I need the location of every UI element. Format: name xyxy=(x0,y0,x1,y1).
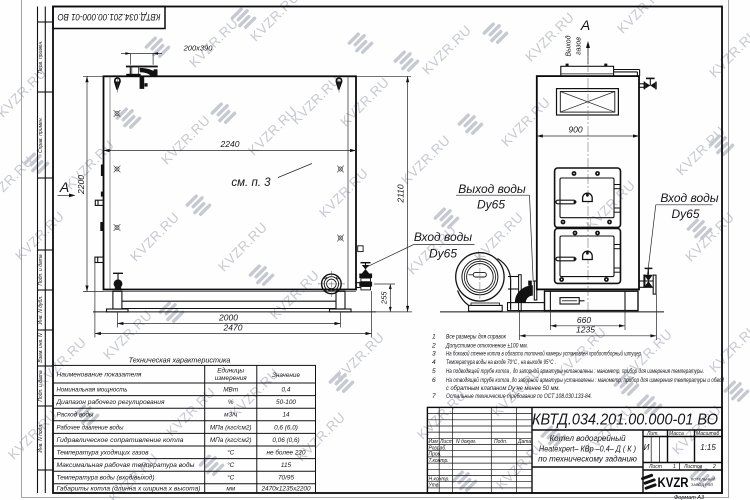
svg-text:14: 14 xyxy=(282,412,290,419)
svg-text:Формат А3: Формат А3 xyxy=(674,495,705,500)
svg-text:7: 7 xyxy=(432,393,436,400)
svg-text:м3/ч: м3/ч xyxy=(224,412,238,419)
svg-text:Все размеры для справок: Все размеры для справок xyxy=(446,333,507,341)
svg-text:Дата: Дата xyxy=(517,439,531,445)
svg-text:На подводящей трубе котла ,: На подводящей трубе котла , до запорной … xyxy=(446,367,704,375)
svg-text:Пров.: Пров. xyxy=(429,452,442,458)
svg-text:2110: 2110 xyxy=(396,184,406,204)
svg-text:Изм: Изм xyxy=(429,439,439,445)
svg-text:Справ. примен.: Справ. примен. xyxy=(38,117,44,153)
svg-text:70/95: 70/95 xyxy=(278,475,294,482)
svg-text:Вход воды: Вход воды xyxy=(414,230,472,244)
svg-text:660: 660 xyxy=(577,315,591,325)
svg-text:мм: мм xyxy=(226,486,235,493)
svg-text:Техническая характеристика: Техническая характеристика xyxy=(129,356,231,365)
svg-text:Единицы: Единицы xyxy=(217,367,244,375)
svg-text:1235: 1235 xyxy=(576,325,595,335)
svg-text:3: 3 xyxy=(432,350,436,357)
svg-text:не более 220: не более 220 xyxy=(266,449,305,457)
svg-text:6: 6 xyxy=(432,377,436,384)
svg-text:Инв. N дубл.: Инв. N дубл. xyxy=(38,296,44,325)
svg-text:Значение: Значение xyxy=(272,372,300,379)
svg-text:Расход воды: Расход воды xyxy=(57,411,94,419)
svg-text:Т.контр.: Т.контр. xyxy=(429,458,449,464)
svg-text:4: 4 xyxy=(432,359,436,366)
svg-text:КОТЕЛЬНЫЙ: КОТЕЛЬНЫЙ xyxy=(691,477,716,482)
svg-text:Лист: Лист xyxy=(648,464,662,470)
svg-text:газов: газов xyxy=(576,37,583,55)
svg-text:2000: 2000 xyxy=(218,313,238,323)
svg-text:На отводящей трубе котла ,до з: На отводящей трубе котла ,до запорной ар… xyxy=(446,376,724,384)
svg-text:Подп. и дата: Подп. и дата xyxy=(38,254,44,286)
svg-text:0,6 (6,0): 0,6 (6,0) xyxy=(274,424,298,431)
svg-text:50-100: 50-100 xyxy=(276,399,296,406)
svg-text:с обратным клапаном Dу не мен: с обратным клапаном Dу не менее 50 мм. xyxy=(446,384,560,392)
svg-text:255: 255 xyxy=(380,291,389,305)
svg-text:Взам. инв. N: Взам. инв. N xyxy=(38,333,44,363)
svg-text:Масса: Масса xyxy=(669,431,684,437)
svg-text:Диапазон рабочего регулировани: Диапазон рабочего регулирования xyxy=(55,398,165,406)
svg-text:А: А xyxy=(580,17,590,33)
svg-text:по техническому заданию: по техническому заданию xyxy=(538,455,637,464)
svg-text:МВт: МВт xyxy=(223,387,239,394)
svg-text:0,4: 0,4 xyxy=(282,387,291,394)
svg-text:КВТД.034.201.00.000-01 ВО: КВТД.034.201.00.000-01 ВО xyxy=(532,412,718,429)
svg-text:N докум.: N докум. xyxy=(456,439,476,445)
svg-text:КВТД.034.201.00.000-01 ВО: КВТД.034.201.00.000-01 ВО xyxy=(57,11,161,22)
svg-text:Максимальная рабочая температу: Максимальная рабочая температура воды xyxy=(57,461,195,469)
svg-text:Допустимое отклонение ±100 мм: Допустимое отклонение ±100 мм. xyxy=(445,342,528,349)
svg-text:МПа (кгс/см2): МПа (кгс/см2) xyxy=(210,424,252,431)
svg-text:1: 1 xyxy=(673,464,676,470)
svg-text:Подп. и дата: Подп. и дата xyxy=(38,370,44,402)
svg-text:Лит.: Лит. xyxy=(646,431,659,437)
svg-text:А: А xyxy=(59,179,69,195)
svg-text:Листов: Листов xyxy=(683,464,703,470)
svg-text:115: 115 xyxy=(281,462,292,469)
svg-text:Наименование показателя: Наименование показателя xyxy=(57,372,143,379)
svg-text:2470: 2470 xyxy=(223,323,243,333)
svg-text:Температура воды на входе 70°: Температура воды на входе 70°С , на выхо… xyxy=(446,358,556,366)
svg-text:Температура воды (вход/выход): Температура воды (вход/выход) xyxy=(57,474,155,482)
svg-text:2200: 2200 xyxy=(76,175,86,195)
svg-text:Dy65: Dy65 xyxy=(429,247,457,261)
svg-text:2240: 2240 xyxy=(220,139,240,149)
svg-text:°С: °С xyxy=(227,474,235,482)
svg-text:1:15: 1:15 xyxy=(700,443,716,452)
svg-text:2470х1235х2200: 2470х1235х2200 xyxy=(260,486,310,493)
svg-text:Габариты котла (длинна х ширин: Габариты котла (длинна х ширина х высота… xyxy=(57,485,201,493)
svg-text:%: % xyxy=(228,399,234,406)
svg-text:Dy65: Dy65 xyxy=(671,207,699,221)
svg-text:200х390: 200х390 xyxy=(183,44,214,53)
svg-text:Гидравлическое сопративление к: Гидравлическое сопративление котла xyxy=(57,436,184,444)
svg-text:Температура уходящих газов: Температура уходящих газов xyxy=(57,449,150,457)
svg-text:На боковой стенке котла в обла: На боковой стенке котла в области топочн… xyxy=(446,349,641,357)
svg-text:Heatexpert– КВр –0,4– Д ( К ): Heatexpert– КВр –0,4– Д ( К ) xyxy=(539,445,636,454)
svg-text:измерения: измерения xyxy=(215,375,248,382)
svg-text:см. п. 3: см. п. 3 xyxy=(231,177,271,189)
svg-text:Лист: Лист xyxy=(439,439,453,445)
svg-text:Перв. примен.: Перв. примен. xyxy=(38,40,44,73)
svg-text:Утв.: Утв. xyxy=(429,483,440,489)
svg-text:Выход воды: Выход воды xyxy=(458,182,526,196)
svg-text:Разраб.: Разраб. xyxy=(429,446,447,452)
svg-text:0,06 (0,6): 0,06 (0,6) xyxy=(272,437,299,444)
svg-text:Выход: Выход xyxy=(565,35,573,56)
svg-text:Котел водогрейный: Котел водогрейный xyxy=(549,434,626,443)
svg-text:2: 2 xyxy=(712,464,716,470)
svg-text:Остальные технические требован: Остальные технические требования по ОСТ … xyxy=(446,392,592,400)
svg-text:Н.контр.: Н.контр. xyxy=(429,477,450,483)
svg-text:5: 5 xyxy=(432,368,436,375)
svg-text:Номинальная мощность: Номинальная мощность xyxy=(57,387,128,394)
svg-text:°С: °С xyxy=(227,449,235,457)
svg-text:ЗАВОД РЭП: ЗАВОД РЭП xyxy=(691,482,713,487)
svg-text:Масштаб: Масштаб xyxy=(696,431,720,437)
svg-text:МПа (кгс/см2): МПа (кгс/см2) xyxy=(210,437,252,444)
svg-text:°С: °С xyxy=(227,461,235,469)
svg-text:Dy65: Dy65 xyxy=(477,198,505,212)
svg-text:2: 2 xyxy=(431,342,436,349)
svg-text:KVZR: KVZR xyxy=(658,475,689,490)
svg-text:И: И xyxy=(644,443,650,452)
svg-text:Рабочее давление воды: Рабочее давление воды xyxy=(57,423,124,431)
svg-text:Инв. N подл.: Инв. N подл. xyxy=(38,423,44,452)
svg-text:900: 900 xyxy=(568,125,582,135)
svg-text:Подп.: Подп. xyxy=(494,439,507,445)
svg-text:1: 1 xyxy=(432,334,436,341)
svg-text:Вход воды: Вход воды xyxy=(660,191,718,205)
